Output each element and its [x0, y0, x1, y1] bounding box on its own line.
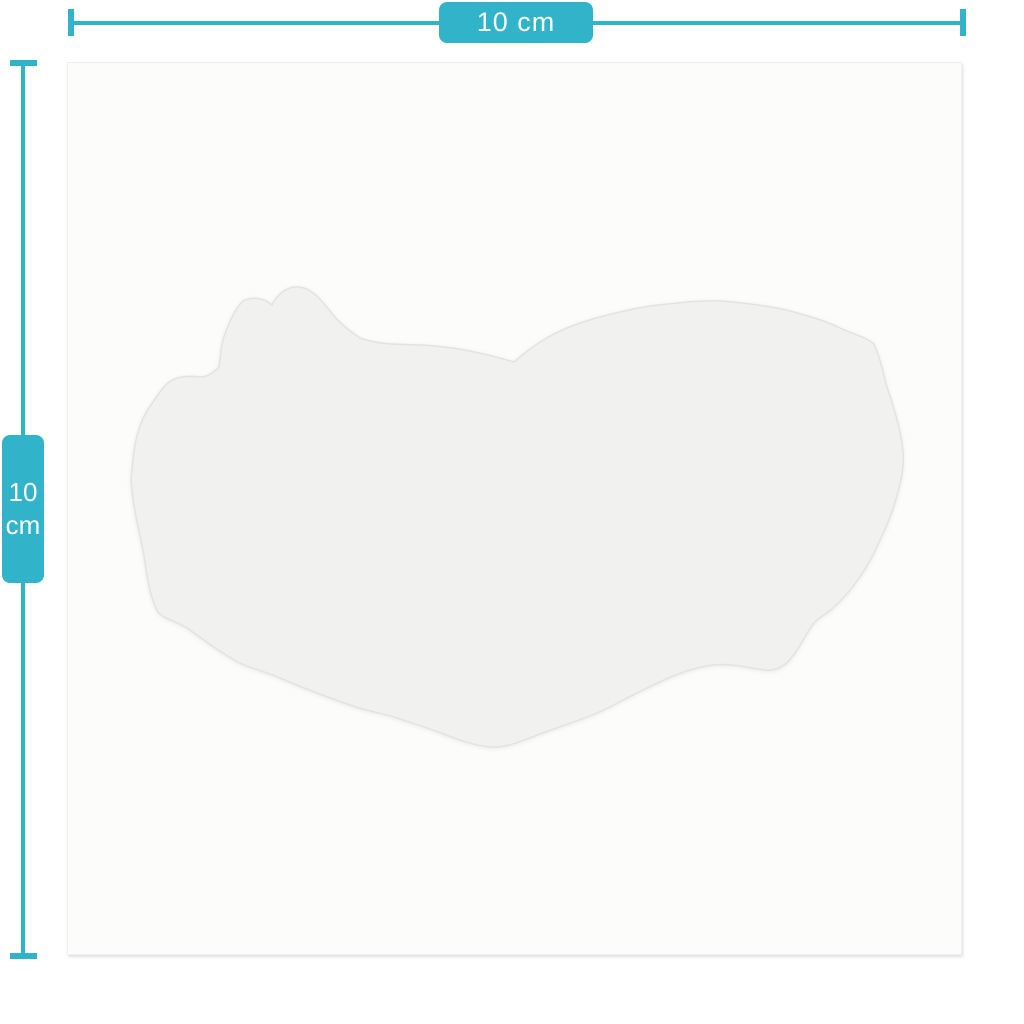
height-ruler-start-tick [10, 60, 37, 66]
height-dimension-value: 10 [9, 476, 38, 509]
height-ruler-end-tick [10, 953, 37, 959]
width-dimension-label: 10 cm [477, 7, 556, 38]
height-dimension-unit: cm [6, 509, 41, 542]
sticker-canvas [67, 62, 962, 955]
width-ruler-end-tick [960, 9, 966, 36]
product-dimension-mockup: 10 cm 10 cm [0, 0, 1024, 1024]
width-dimension-badge: 10 cm [439, 2, 593, 43]
width-ruler-start-tick [68, 9, 74, 36]
height-dimension-badge: 10 cm [2, 435, 44, 583]
